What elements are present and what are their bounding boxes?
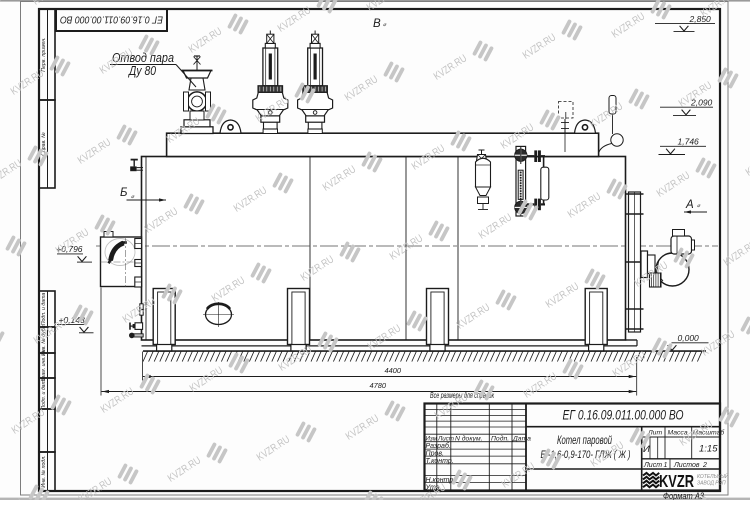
svg-text:ЕГ 0.16.09.011.00.000 ВО: ЕГ 0.16.09.011.00.000 ВО xyxy=(60,14,163,26)
svg-text:1,746: 1,746 xyxy=(678,137,700,147)
svg-text:0,000: 0,000 xyxy=(678,333,700,343)
svg-text:В: В xyxy=(373,18,381,30)
svg-text:Лист: Лист xyxy=(643,462,662,469)
svg-text:Подп. и дата: Подп. и дата xyxy=(41,377,47,410)
svg-text:Котел паровой: Котел паровой xyxy=(557,435,612,447)
svg-text:Ду 80: Ду 80 xyxy=(127,64,156,78)
svg-text:Подп. и дата: Подп. и дата xyxy=(41,293,47,326)
svg-text:Пров.: Пров. xyxy=(426,450,445,457)
svg-text:Лист: Лист xyxy=(437,436,454,443)
svg-text:Перв. примен.: Перв. примен. xyxy=(41,37,47,71)
svg-text:4400: 4400 xyxy=(385,366,402,375)
svg-text:Подп.: Подп. xyxy=(491,435,509,443)
svg-text:Разраб.: Разраб. xyxy=(426,442,451,450)
svg-text:Т.контр.: Т.контр. xyxy=(426,458,454,465)
svg-text:Листов: Листов xyxy=(673,462,700,469)
svg-text:2: 2 xyxy=(702,462,707,469)
svg-text:ЕГ 0.16.09.011.00.000 ВО: ЕГ 0.16.09.011.00.000 ВО xyxy=(563,407,684,423)
svg-text:Изм: Изм xyxy=(426,436,438,443)
svg-text:1:15: 1:15 xyxy=(699,444,718,455)
svg-text:Взам. инв. №: Взам. инв. № xyxy=(41,349,47,381)
svg-text:ЗАВОД РЭП: ЗАВОД РЭП xyxy=(697,481,726,487)
svg-text:Дата: Дата xyxy=(512,436,531,443)
svg-text:1: 1 xyxy=(664,462,668,469)
svg-text:А: А xyxy=(685,199,694,211)
svg-text:Инв. № подл.: Инв. № подл. xyxy=(41,455,47,487)
svg-text:Б: Б xyxy=(120,187,128,199)
svg-text:Формат А3: Формат А3 xyxy=(663,491,705,500)
svg-text:4780: 4780 xyxy=(370,381,387,390)
svg-text:КОТЕЛЬНЫЙ: КОТЕЛЬНЫЙ xyxy=(697,472,729,480)
svg-text:N докум.: N докум. xyxy=(455,435,483,443)
svg-text:KVZR: KVZR xyxy=(659,471,694,491)
